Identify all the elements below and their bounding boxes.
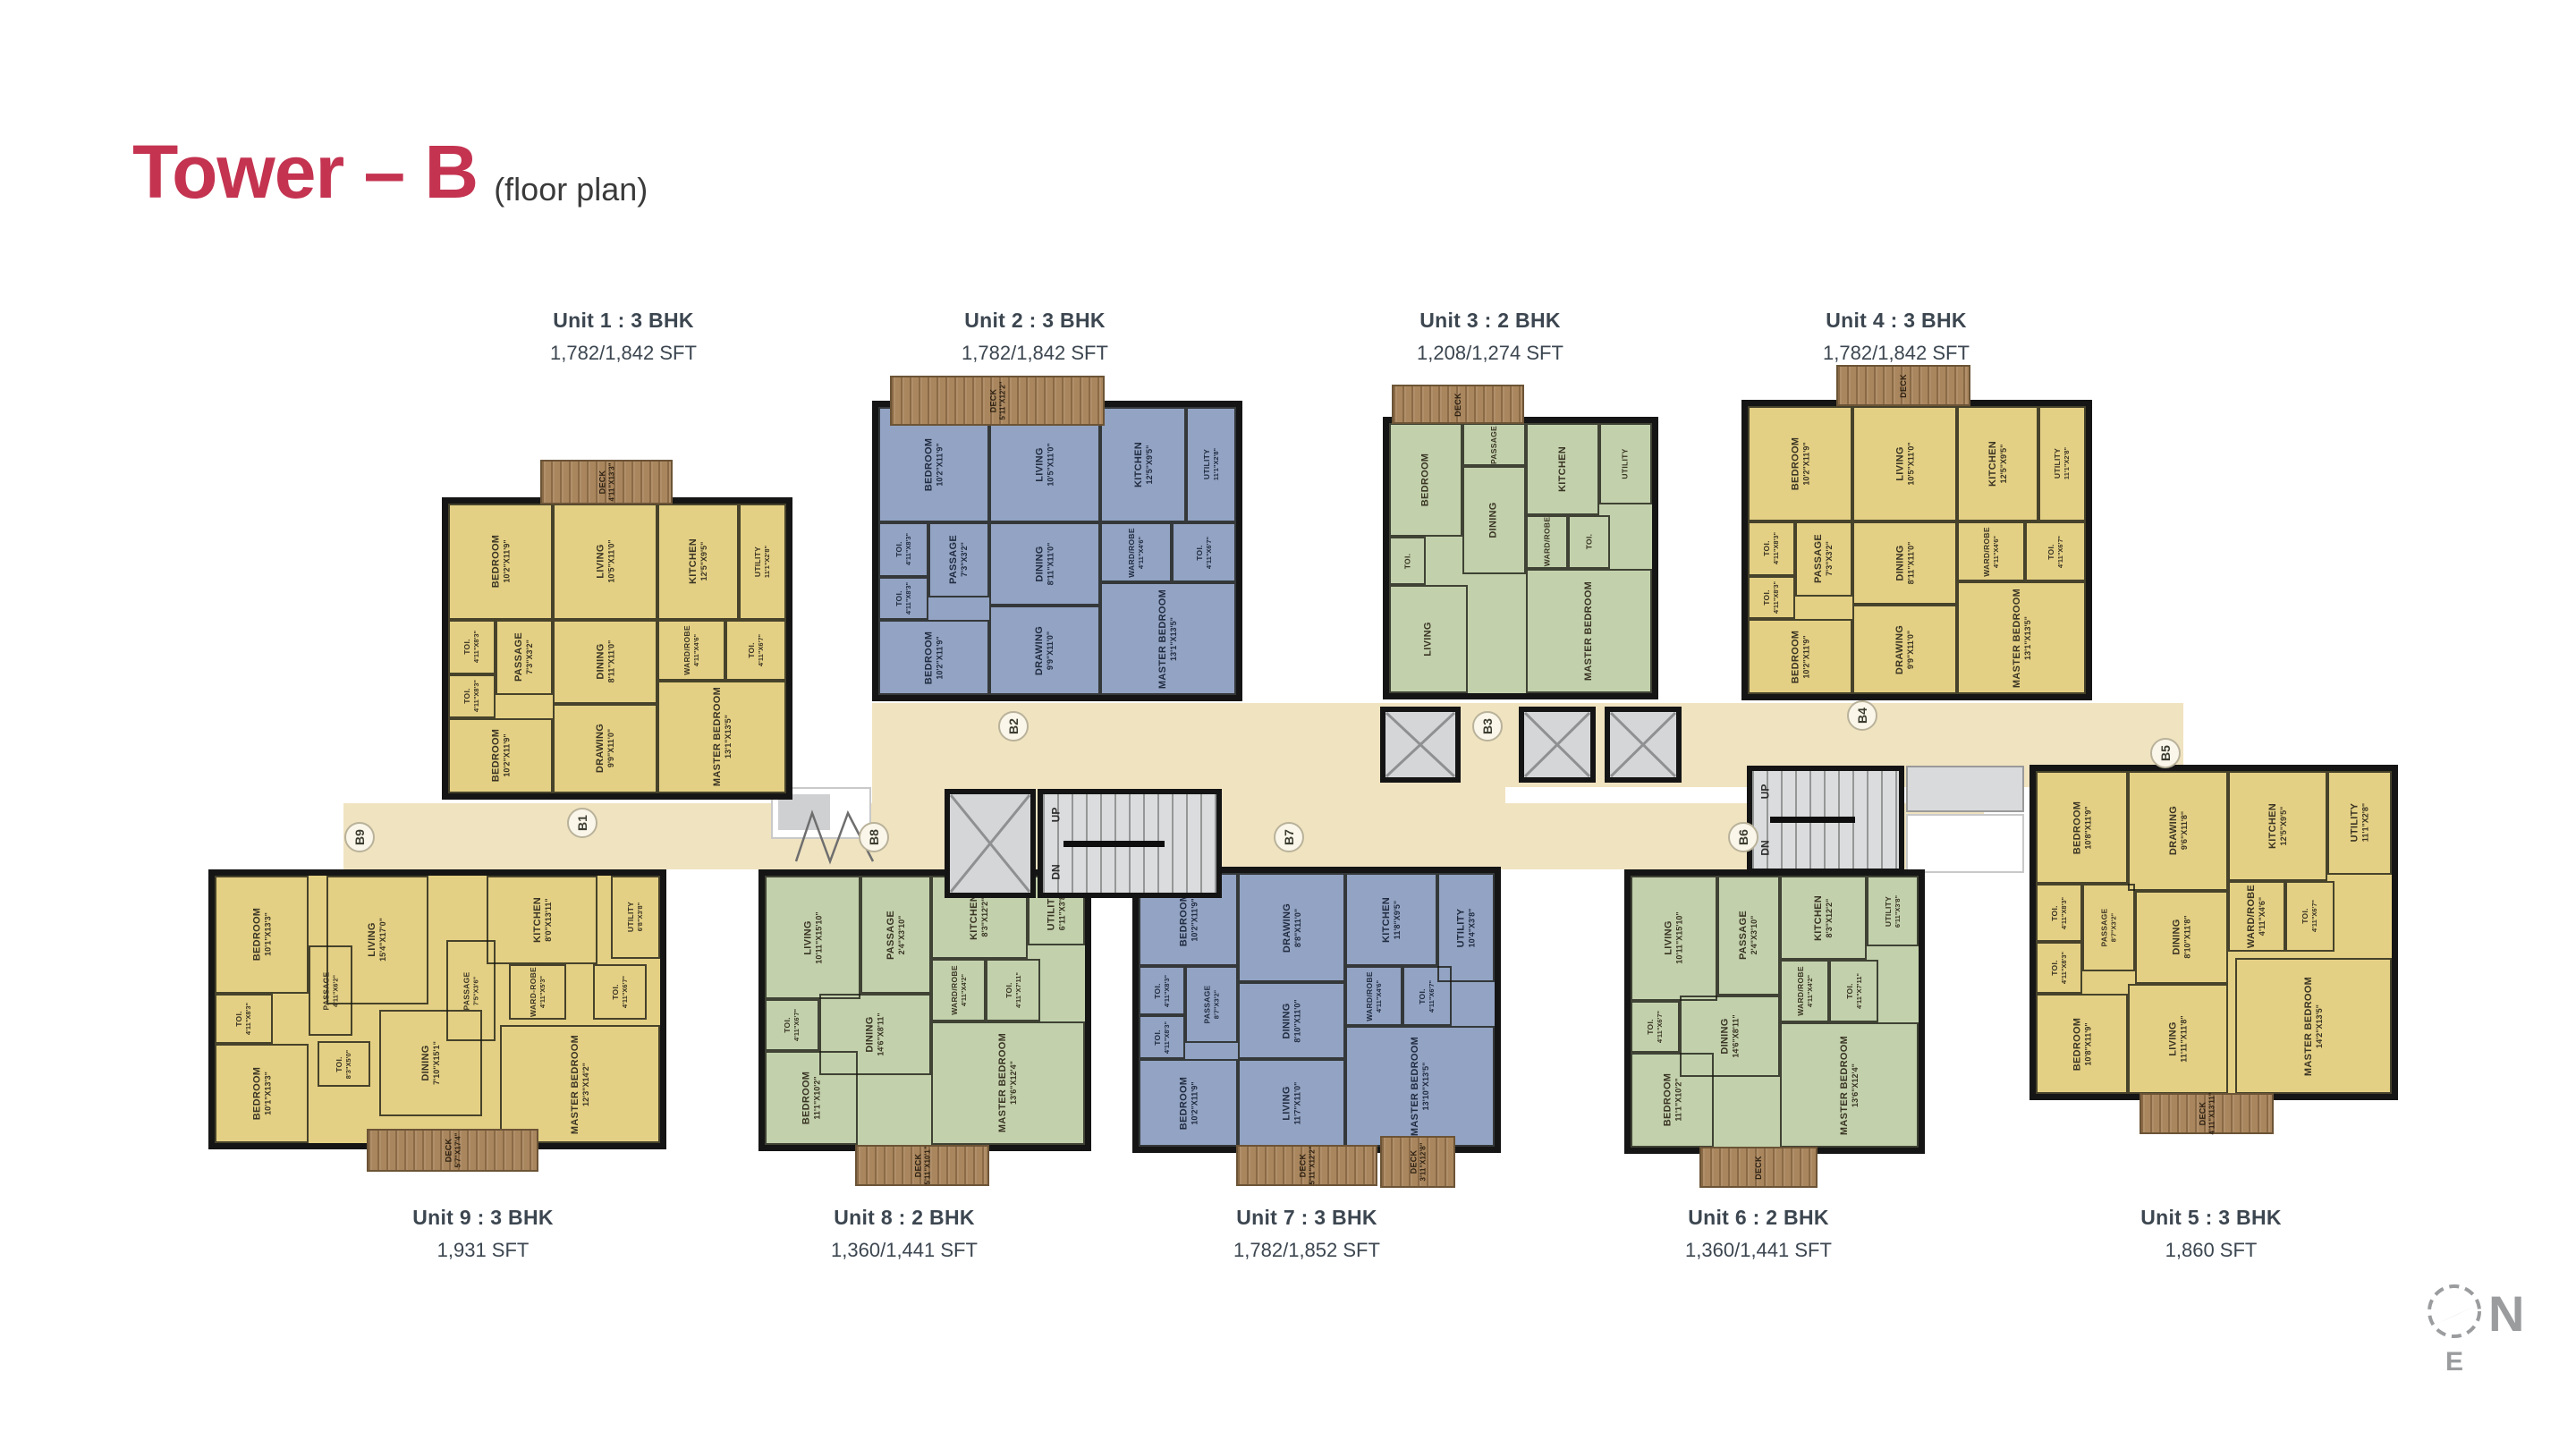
room-label: BEDROOM10'1"X13'3" [251,908,272,962]
room-dimension: 4'11"X8'3" [1163,1021,1171,1054]
room-dimension: 8'3"X12'2" [980,894,989,940]
room-label: TOI.4'11"X7'11" [1004,972,1021,1008]
compass-needle [2436,1306,2476,1324]
room-dimension: 4'11"X6'7" [1205,537,1213,569]
deck-name: DECK [1409,1143,1418,1182]
room: BEDROOM10'2"X11'9" [878,620,989,695]
room-dimension: 8'11"X11'0" [606,640,615,683]
stairwell: UPDN [1038,789,1222,898]
room-label: DRAWING9'6"X11'8" [2168,806,2189,855]
room-name: MASTER BEDROOM [1583,581,1594,681]
room: PASSAGE4'11"X6'2" [309,945,353,1037]
room-name: TOI. [1418,980,1427,1013]
room: DINING7'10"X15'1" [379,1010,482,1117]
room-name: TOI. [1762,532,1771,564]
room: DRAWING9'9"X11'0" [1852,605,1957,694]
room-label: UTILITY11'1"X2'8" [754,546,772,578]
room-label: LIVING10'5"X11'0" [1894,442,1915,485]
room-name: UTILITY [2054,447,2063,479]
room-name: LIVING [1664,912,1674,964]
room-dimension: 13'1"X13'5" [2023,589,2032,688]
tower-subtitle: (floor plan) [494,169,648,209]
unit-3-label: Unit 3 : 2 BHK1,208/1,274 SFT [1302,309,1678,365]
room-dimension: 14'6"X8'11" [877,1013,885,1055]
unit-7-label: Unit 7 : 3 BHK1,782/1,852 SFT [1119,1206,1495,1262]
room-dimension: 8'10"X11'0" [1293,999,1302,1042]
room: WARD/ROBE4'11"X4'6" [657,620,725,681]
room-name: BEDROOM [1790,630,1801,683]
room: PASSAGE7'3"X3'2" [1795,521,1852,597]
room-dimension: 8'0"X13'11" [544,897,553,943]
room: BEDROOM10'2"X11'9" [1748,619,1852,694]
room-dimension: 13'1"X13'5" [724,687,733,786]
room-label: KITCHEN8'3"X12'2" [1813,895,1834,941]
room: KITCHEN [1526,423,1599,515]
room-name: PASSAGE [1814,534,1825,583]
room-label: DINING14'6"X8'11" [1720,1014,1741,1057]
room-name: UTILITY [1456,908,1467,947]
room: TOI. [1389,537,1426,585]
room-label: UTILITY11'1"X2'8" [2054,447,2072,479]
room-label: LIVING10'5"X11'0" [1034,443,1055,486]
corridor-badge-b6: B6 [1728,822,1758,852]
stair-down-label: DN [1050,864,1063,879]
room-name: LIVING [595,540,606,583]
unit-name: Unit 6 : 2 BHK [1571,1206,1946,1230]
room-dimension: 13'6"X12'4" [1851,1035,1860,1134]
unit-6-plan: LIVING10'11"X15'10"PASSAGE2'4"X3'10"KITC… [1624,869,1925,1154]
room-label: KITCHEN8'3"X12'2" [969,894,989,940]
room-label: DINING8'10"X11'0" [1282,999,1302,1042]
room: LIVING11'11"X11'8" [2128,984,2227,1094]
room-name: TOI. [2050,952,2059,984]
room: WARD/ROBE4'11"X4'6" [1100,522,1172,583]
room-label: TOI.4'11"X6'7" [1646,1011,1664,1043]
room-label: BEDROOM10'2"X11'9" [490,729,511,783]
unit-1-label: Unit 1 : 3 BHK1,782/1,842 SFT [436,309,811,365]
elevator-shaft [945,789,1036,898]
room: BEDROOM10'1"X13'3" [215,1044,309,1143]
room-name: DINING [1488,503,1499,538]
room-dimension: 11'1"X2'8" [1212,448,1220,480]
unit-area: 1,360/1,441 SFT [716,1239,1092,1262]
room: DINING [1462,466,1526,574]
room-label: BEDROOM10'1"X13'3" [251,1067,272,1121]
unit-area: 1,782/1,852 SFT [1119,1239,1495,1262]
room-label: KITCHEN12'5"X9'5" [1987,441,2008,487]
room-name: WARD/ROBE [1127,528,1136,578]
unit-5-plan: BEDROOM10'8"X11'9"DRAWING9'6"X11'8"KITCH… [2029,765,2398,1100]
room-dimension: 7'3"X3'2" [1826,534,1835,583]
deck: DECK [1699,1147,1818,1188]
room-name: BEDROOM [1662,1073,1673,1127]
room-dimension: 4'11"X8'3" [1163,975,1171,1007]
room-dimension: 10'2"X11'9" [1801,437,1810,491]
room-name: WARD/ROBE [1982,527,1991,577]
corridor-badge-b3: B3 [1472,711,1503,741]
room-name: TOI. [1153,975,1162,1007]
room-label: MASTER BEDROOM13'10"X13'5" [1410,1037,1430,1136]
room: UTILITY6'8"X3'8" [611,876,660,959]
unit-name: Unit 7 : 3 BHK [1119,1206,1495,1230]
elevator-shaft [1380,707,1461,783]
room-dimension: 11'1"X2'8" [764,546,772,578]
room-dimension: 9'6"X11'8" [2180,806,2189,855]
room-dimension: 7'10"X15'1" [432,1041,441,1085]
compass-north-label: N [2488,1285,2524,1342]
deck: DECK3'11"X12'8" [1380,1136,1455,1188]
room-dimension: 8'11"X11'0" [1046,543,1055,586]
room-dimension: 4'11"X8'3" [904,582,912,614]
room-name: LIVING [367,918,377,962]
room-name: BEDROOM [1790,437,1801,491]
room-name: MASTER BEDROOM [2012,589,2022,688]
room-name: DINING [1282,999,1292,1042]
stair-up-label: UP [1758,784,1771,800]
room: MASTER BEDROOM [1526,569,1652,693]
room-dimension: 15'4"X17'0" [378,918,387,962]
corridor-badge-b8: B8 [859,822,889,852]
room-dimension: 4'11"X8'3" [1772,532,1780,564]
corridor-badge-b2: B2 [998,711,1029,741]
room: DINING8'11"X11'0" [989,522,1100,606]
room-label: BEDROOM11'1"X10'2" [1662,1073,1682,1127]
room: BEDROOM10'8"X11'9" [2036,994,2128,1094]
deck-name: DECK [988,382,997,420]
room: WARD/ROBE4'11"X4'6" [2228,881,2285,952]
deck: DECK5'11"X12'2" [1236,1145,1377,1186]
room-name: KITCHEN [969,894,979,940]
unit-area: 1,782/1,842 SFT [847,342,1223,365]
room-label: KITCHEN12'5"X9'5" [2267,803,2288,849]
deck: DECK [1836,365,1970,406]
unit-area: 1,782/1,842 SFT [1708,342,2084,365]
room-name: MASTER BEDROOM [712,687,723,786]
room-name: KITCHEN [532,897,543,943]
room-label: BEDROOM10'2"X11'9" [490,535,511,589]
room-label: TOI.4'11"X6'7" [1195,537,1213,569]
room-name: TOI. [894,533,903,565]
room-dimension: 4'11"X4'6" [1992,527,2000,577]
room: TOI.4'11"X6'7" [1172,522,1236,583]
room-name: BEDROOM [923,438,934,492]
corridor-badge-b4: B4 [1847,700,1877,731]
room-name: WARD-ROBE [529,967,538,1017]
room-label: PASSAGE7'3"X3'2" [1814,534,1835,583]
room-dimension: 12'3"X14'2" [581,1035,590,1134]
room: BEDROOM10'2"X11'9" [1748,406,1852,521]
room-dimension: 7'5"X3'6" [471,971,479,1010]
deck: DECK4'11"X13'3" [540,460,673,504]
room-dimension: 7'3"X3'2" [960,535,969,584]
room: BEDROOM11'1"X10'2" [765,1051,858,1145]
stair-landing [1770,817,1855,823]
unit-name: Unit 4 : 3 BHK [1708,309,2084,333]
room-label: TOI.4'11"X6'7" [2046,536,2064,568]
room-name: TOI. [1153,1021,1162,1054]
deck-dimension: 3'11"X12'8" [1419,1143,1427,1182]
tower-title: Tower – B [132,134,478,209]
room-name: KITCHEN [1133,442,1144,487]
deck-name: DECK [444,1133,453,1168]
room-dimension: 11'8"X9'5" [1393,897,1402,943]
room-name: DINING [1894,542,1905,585]
room-name: DINING [1720,1014,1731,1057]
room-name: MASTER BEDROOM [998,1033,1009,1132]
room-dimension: 4'11"X4'6" [1137,528,1145,578]
room-name: KITCHEN [2267,803,2278,849]
room-dimension: 8'10"X11'8" [2183,916,2192,959]
room: TOI.4'11"X8'3" [448,674,496,718]
room-dimension: 10'2"X11'9" [1190,1076,1199,1130]
room-label: LIVING [1423,622,1435,656]
room-label: DINING8'11"X11'0" [1034,543,1055,586]
room: TOI.4'11"X6'7" [1631,1001,1680,1053]
room: BEDROOM10'2"X11'9" [448,718,553,793]
deck-dimension: 4'11"X13'3" [607,463,615,502]
room-name: MASTER BEDROOM [1839,1035,1850,1134]
room-name: BEDROOM [923,631,934,684]
unit-2-plan: BEDROOM10'2"X11'9"LIVING10'5"X11'0"KITCH… [872,401,1242,701]
deck: DECK5'11"X12'2" [890,376,1105,426]
room-name: PASSAGE [1739,911,1750,960]
corridor-badge-b9: B9 [344,822,375,852]
unit-8-plan: LIVING10'11"X15'10"PASSAGE2'4"X3'10"KITC… [758,869,1091,1151]
room-dimension: 10'5"X11'0" [1046,443,1055,486]
room-dimension: 12'5"X9'5" [699,538,708,584]
room-name: BEDROOM [251,908,262,962]
room-label: BEDROOM10'2"X11'9" [1178,1076,1199,1130]
room: MASTER BEDROOM13'6"X12'4" [931,1021,1085,1145]
room-dimension: 13'10"X13'5" [1421,1037,1430,1136]
room-name: DRAWING [2168,806,2179,855]
room-label: PASSAGE [1489,426,1499,464]
room-dimension: 4'11"X8'3" [2060,897,2068,929]
room-name: DINING [595,640,606,683]
room: MASTER BEDROOM13'1"X13'5" [1100,582,1236,695]
room-dimension: 10'5"X11'0" [606,540,615,583]
room-name: KITCHEN [1557,446,1568,492]
corridor-badge-text: B2 [1006,718,1021,734]
room-label: WARD/ROBE4'11"X4'6" [1982,527,2000,577]
room-dimension: 10'1"X13'3" [263,908,272,962]
room-label: PASSAGE7'3"X3'2" [514,632,535,682]
room-label: DRAWING9'9"X11'0" [595,724,615,773]
room-label: MASTER BEDROOM14'2"X13'5" [2303,977,2324,1076]
room-label: MASTER BEDROOM13'1"X13'5" [712,687,733,786]
room-dimension: 6'8"X3'8" [637,902,645,932]
room-dimension: 4'11"X8'3" [472,680,480,712]
corridor-vestibule [1906,766,2024,812]
room-dimension: 12'5"X9'5" [1999,441,2008,487]
room-label: MASTER BEDROOM12'3"X14'2" [570,1035,590,1134]
corridor-badge-text: B9 [352,829,367,845]
room-label: KITCHEN12'5"X9'5" [688,538,708,584]
room: TOI. [1568,515,1610,569]
room-dimension: 8'3"X5'0" [344,1050,352,1079]
room-name: LIVING [2168,1015,2179,1062]
room-label: KITCHEN8'0"X13'11" [532,897,553,943]
room: UTILITY11'1"X2'8" [2327,771,2392,875]
room-label: WARD/ROBE4'11"X4'6" [2246,885,2267,948]
room-label: WARD-ROBE4'11"X5'3" [529,967,547,1017]
room-dimension: 4'11"X8'3" [244,1003,252,1035]
room: BEDROOM10'1"X13'3" [215,876,309,994]
room-label: DINING7'10"X15'1" [420,1041,441,1085]
room: DINING8'10"X11'8" [2135,891,2227,985]
unit-9-plan: BEDROOM10'1"X13'3"LIVING15'4"X17'0"KITCH… [208,869,666,1149]
room: PASSAGE8'7"X3'2" [1185,966,1239,1043]
corridor-badge-text: B6 [1736,829,1750,845]
room-label: LIVING10'11"X15'10" [1664,912,1684,964]
room-dimension: 4'11"X6'2" [331,971,339,1010]
deck: DECK [1392,385,1524,424]
room: PASSAGE7'3"X3'2" [928,522,989,597]
room-name: TOI. [462,631,471,663]
room-dimension: 4'11"X6'7" [1428,980,1436,1013]
unit-4-label: Unit 4 : 3 BHK1,782/1,842 SFT [1708,309,2084,365]
room: WARD/ROBE4'11"X4'6" [1345,966,1402,1026]
room-label: WARD/ROBE4'11"X4'6" [1365,971,1383,1021]
room-dimension: 11'1"X2'8" [2361,803,2370,843]
room-label: UTILITY11'1"X2'8" [2350,803,2370,843]
room: DRAWING9'9"X11'0" [989,606,1100,695]
room: KITCHEN8'3"X12'2" [1780,876,1867,960]
room: DRAWING8'8"X11'0" [1238,873,1344,982]
room-label: WARD/ROBE [1542,517,1552,567]
room-name: LIVING [1423,622,1434,656]
room-name: UTILITY [1202,448,1211,480]
room-label: PASSAGE8'7"X3'2" [2100,909,2118,947]
deck-name: DECK [2198,1093,2207,1135]
unit-name: Unit 9 : 3 BHK [295,1206,671,1230]
room-label: LIVING10'11"X15'10" [802,911,823,963]
room: KITCHEN12'5"X9'5" [1100,407,1186,522]
room-dimension: 4'11"X5'3" [538,967,547,1017]
room-dimension: 14'2"X13'5" [2315,977,2324,1076]
room: TOI.4'11"X6'7" [2285,881,2335,952]
room-label: TOI.4'11"X8'3" [1762,581,1780,614]
room-dimension: 4'11"X4'2" [960,965,968,1015]
room-dimension: 4'11"X8'3" [1772,581,1780,614]
room-name: LIVING [802,911,813,963]
room: MASTER BEDROOM13'1"X13'5" [1957,581,2086,694]
room-dimension: 11'11"X11'8" [2180,1015,2189,1062]
room-label: TOI.4'11"X8'3" [462,680,480,712]
corridor-badge-b7: B7 [1274,822,1304,852]
room-label: BEDROOM [1420,453,1432,507]
corridor-badge-b5: B5 [2150,738,2181,768]
room-dimension: 13'1"X13'5" [1170,589,1179,689]
room-name: KITCHEN [1813,895,1824,941]
room: DRAWING9'9"X11'0" [553,704,657,793]
room-name: BEDROOM [251,1067,262,1121]
room-name: WARD/ROBE [682,625,691,675]
room-name: TOI. [335,1050,343,1079]
room-label: TOI.4'11"X8'3" [234,1003,252,1035]
room: LIVING10'11"X15'10" [765,876,860,999]
unit-name: Unit 1 : 3 BHK [436,309,811,333]
unit-2-label: Unit 2 : 3 BHK1,782/1,842 SFT [847,309,1223,365]
room-dimension: 4'11"X4'2" [1806,966,1814,1016]
room-dimension: 2'4"X3'10" [1750,911,1759,960]
room-name: BEDROOM [801,1072,811,1125]
compass-east-label: E [2445,1347,2463,1377]
deck-dimension: 5'11"X10'1" [923,1147,931,1185]
room-dimension: 8'8"X11'0" [1293,903,1302,953]
unit-6-label: Unit 6 : 2 BHK1,360/1,441 SFT [1571,1206,1946,1262]
room-name: TOI. [234,1003,243,1035]
room-dimension: 11'1"X2'8" [2063,447,2072,479]
room: MASTER BEDROOM13'1"X13'5" [657,681,786,793]
room: UTILITY11'1"X2'8" [2038,406,2086,521]
room-label: TOI.4'11"X8'3" [1762,532,1780,564]
room: KITCHEN11'8"X9'5" [1345,873,1437,966]
room-name: PASSAGE [514,632,525,682]
room-label: UTILITY10'4"X3'8" [1456,908,1477,947]
room-name: KITCHEN [1381,897,1392,943]
room: MASTER BEDROOM13'10"X13'5" [1345,1026,1495,1147]
room-dimension: 10'8"X11'9" [2083,1017,2092,1071]
room-label: PASSAGE2'4"X3'10" [1739,911,1759,960]
room-name: TOI. [2046,536,2055,568]
room-dimension: 4'11"X8'3" [2060,952,2068,984]
room-dimension: 10'8"X11'9" [2083,801,2092,854]
room-label: BEDROOM11'1"X10'2" [801,1072,821,1125]
room-label: DRAWING9'9"X11'0" [1034,625,1055,674]
room-name: MASTER BEDROOM [1158,589,1169,689]
room: TOI.4'11"X8'3" [2036,884,2082,942]
room: LIVING10'5"X11'0" [553,504,657,620]
room-dimension: 2'4"X3'10" [897,911,906,960]
room-label: KITCHEN [1557,446,1569,492]
room: TOI.4'11"X8'3" [1748,576,1795,619]
stair-landing [1063,841,1165,847]
room-name: TOI. [783,1009,792,1041]
room-name: TOI. [2050,897,2059,929]
room-dimension: 4'11"X8'3" [472,631,480,663]
deck-label: DECK4'11"X13'3" [597,463,615,502]
room-name: TOI. [462,680,471,712]
room: TOI.4'11"X8'3" [878,577,928,620]
room-dimension: 4'11"X7'11" [1013,972,1021,1008]
room-label: TOI.4'11"X7'11" [1845,973,1863,1009]
room: UTILITY11'1"X2'8" [739,504,786,620]
room-name: BEDROOM [1420,453,1431,507]
room: MASTER BEDROOM14'2"X13'5" [2235,958,2392,1094]
room-name: DINING [865,1013,876,1055]
stair-down-label: DN [1759,840,1772,855]
deck-label: DECK3'11"X12'8" [1409,1143,1427,1182]
room-name: KITCHEN [1987,441,1998,487]
room-label: DINING14'6"X8'11" [865,1013,885,1055]
room-dimension: 4'11"X6'7" [792,1009,801,1041]
room-dimension: 8'11"X11'0" [1906,542,1915,585]
room: WARD/ROBE4'11"X4'6" [1957,521,2025,582]
room-dimension: 9'9"X11'0" [1906,624,1915,674]
room-name: WARD/ROBE [1542,517,1551,567]
room-name: BEDROOM [2072,801,2082,854]
deck: DECK5'7"X17'4" [367,1129,538,1172]
room: TOI.4'11"X8'3" [448,620,496,675]
room-name: UTILITY [2350,803,2360,843]
unit-7-plan: BEDROOM10'2"X11'9"DRAWING8'8"X11'0"KITCH… [1132,867,1501,1153]
room-label: MASTER BEDROOM13'6"X12'4" [1839,1035,1860,1134]
room-name: TOI. [1004,972,1013,1008]
room-label: TOI.4'11"X8'3" [2050,897,2068,929]
room-label: PASSAGE2'4"X3'10" [885,911,906,960]
room-label: TOI.4'11"X6'7" [783,1009,801,1041]
